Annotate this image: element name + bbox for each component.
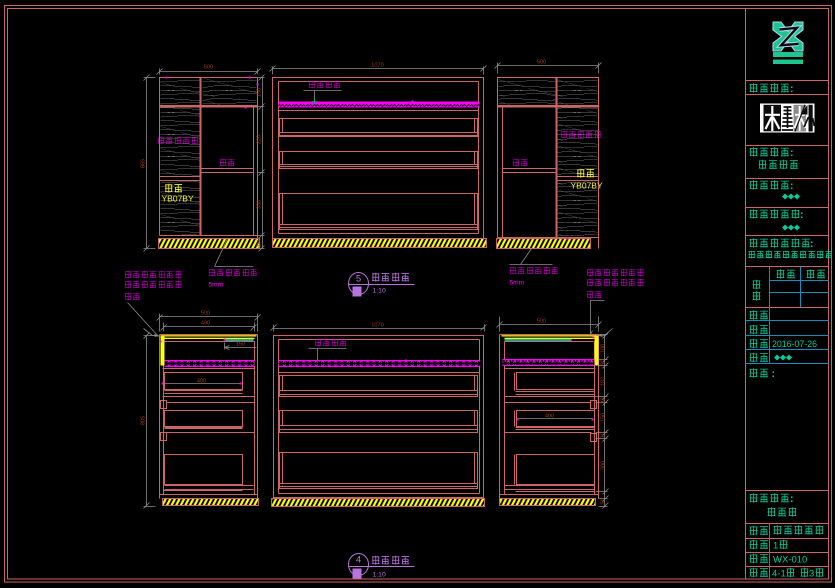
svg-text:YB07BY: YB07BY (571, 181, 603, 191)
svg-text:150: 150 (601, 413, 607, 422)
svg-text:5: 5 (356, 274, 361, 285)
svg-text:YB07BY: YB07BY (162, 194, 194, 204)
svg-text:4: 4 (356, 555, 361, 566)
svg-text:1070: 1070 (371, 323, 383, 329)
svg-text:500: 500 (204, 65, 213, 71)
svg-text:330: 330 (257, 200, 263, 209)
svg-text:150: 150 (236, 342, 245, 348)
svg-text:50: 50 (601, 359, 607, 365)
svg-text:3: 3 (809, 569, 814, 580)
svg-text:5mm: 5mm (209, 282, 224, 289)
svg-text:1:10: 1:10 (373, 572, 386, 579)
svg-text:100: 100 (601, 344, 607, 353)
svg-text:WX-010: WX-010 (773, 555, 807, 566)
svg-text:100: 100 (257, 238, 263, 247)
svg-text:490: 490 (201, 321, 210, 327)
svg-text:300: 300 (601, 461, 607, 470)
svg-text:1:10: 1:10 (373, 288, 386, 295)
svg-text:500: 500 (537, 60, 546, 66)
svg-text:30: 30 (601, 432, 607, 438)
svg-text:30: 30 (601, 397, 607, 403)
svg-text:150: 150 (257, 88, 263, 97)
svg-text:1070: 1070 (371, 63, 383, 69)
svg-text:182: 182 (601, 377, 607, 386)
svg-text:400: 400 (545, 414, 554, 420)
svg-text:500: 500 (537, 319, 546, 325)
svg-text:500: 500 (201, 311, 210, 317)
svg-text:2016-07-26: 2016-07-26 (772, 339, 817, 349)
svg-text:400: 400 (197, 379, 206, 385)
svg-text:865: 865 (141, 159, 147, 168)
svg-text:50: 50 (601, 498, 607, 504)
svg-text:220: 220 (257, 135, 263, 144)
svg-text:805: 805 (141, 416, 147, 425)
svg-text:1: 1 (773, 541, 778, 552)
svg-text:5mm: 5mm (510, 280, 525, 287)
svg-text:4-1: 4-1 (772, 569, 786, 580)
